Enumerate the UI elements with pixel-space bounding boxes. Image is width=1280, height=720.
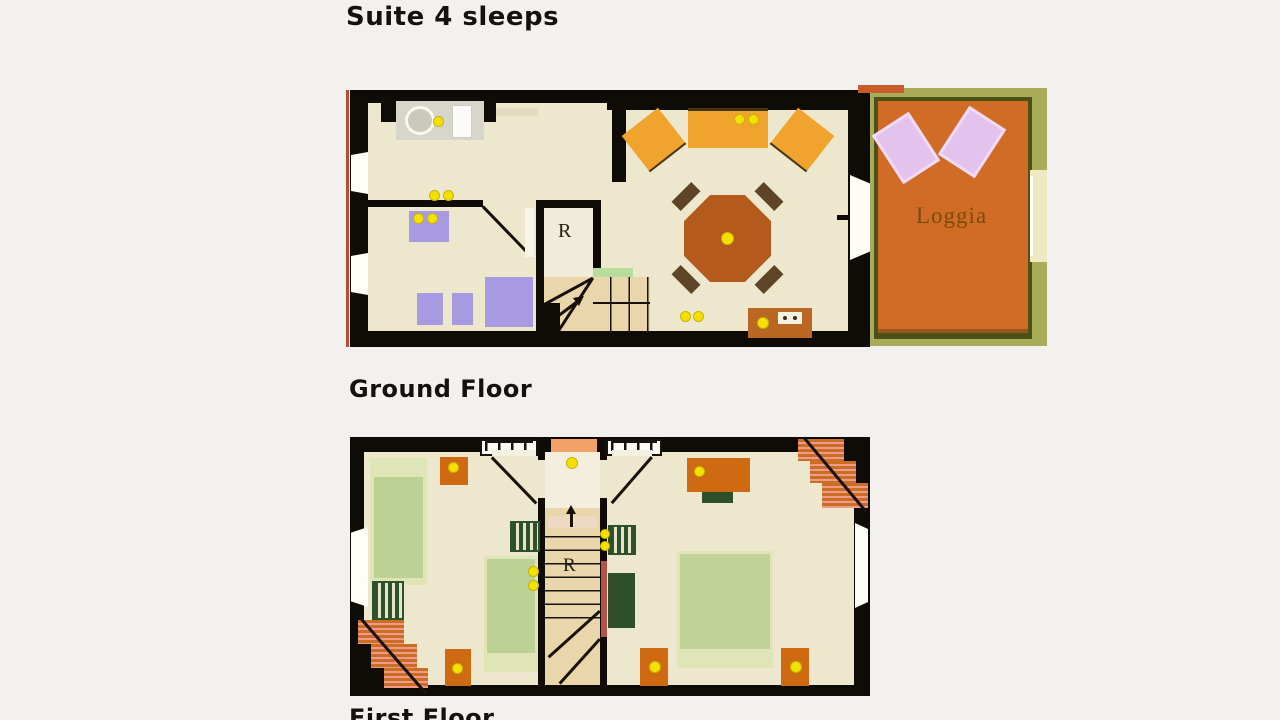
sideboard-knob bbox=[793, 316, 797, 320]
gf-living-divider-stub bbox=[612, 103, 626, 182]
sideboard-knob bbox=[783, 316, 787, 320]
lamp-dot bbox=[528, 566, 539, 577]
loggia-label: Loggia bbox=[916, 203, 987, 229]
bathroom-door-leaf bbox=[525, 208, 534, 257]
double-bed-mattress bbox=[680, 554, 770, 649]
kitchen-sink bbox=[405, 106, 435, 135]
lamp-dot bbox=[566, 457, 578, 469]
ff-stairwell-wall-stub-left bbox=[538, 452, 545, 460]
lamp-dot bbox=[413, 213, 424, 224]
lamp-dot bbox=[600, 529, 610, 539]
lamp-dot bbox=[680, 311, 691, 322]
gf-bathroom-wall bbox=[368, 200, 483, 207]
kitchen-appliance bbox=[452, 105, 472, 138]
gf-stairs-treads bbox=[593, 277, 650, 331]
bathroom-shower bbox=[485, 277, 533, 327]
lamp-dot bbox=[433, 116, 444, 127]
ff-window-right bbox=[855, 523, 868, 608]
page-title: Suite 4 sleeps bbox=[346, 2, 559, 32]
ground-floor-left-trim bbox=[346, 90, 349, 347]
radiator bbox=[608, 525, 636, 555]
lamp-dot bbox=[427, 213, 438, 224]
ff-storage-room-label: R bbox=[563, 555, 576, 577]
gf-storage-room-label: R bbox=[558, 220, 571, 243]
lamp-dot bbox=[600, 541, 610, 551]
gf-window-left-2 bbox=[351, 253, 368, 295]
french-window-gap-right bbox=[612, 450, 652, 456]
french-window-gap-left bbox=[492, 450, 536, 456]
bathroom-toilet bbox=[417, 293, 443, 325]
ff-stairwell-wall-stub-right bbox=[600, 452, 607, 460]
radiator bbox=[510, 521, 540, 552]
ground-floor-label: Ground Floor bbox=[349, 375, 532, 403]
lamp-dot bbox=[443, 190, 454, 201]
gf-storage-wall-right bbox=[593, 200, 601, 277]
loggia-opening-edge bbox=[1030, 176, 1033, 256]
lamp-dot bbox=[790, 661, 802, 673]
gf-storage-wall-top bbox=[536, 200, 601, 208]
gf-stairs-tread-line bbox=[593, 302, 650, 304]
lamp-dot bbox=[649, 661, 661, 673]
loggia-bottom-line bbox=[878, 329, 1028, 333]
lamp-dot bbox=[448, 462, 459, 473]
lamp-dot bbox=[694, 466, 705, 477]
lamp-dot bbox=[748, 114, 759, 125]
lamp-dot bbox=[429, 190, 440, 201]
loggia-top-trim bbox=[858, 85, 904, 93]
gf-pillar-right bbox=[483, 103, 496, 122]
wardrobe bbox=[608, 573, 635, 628]
lamp-dot bbox=[693, 311, 704, 322]
gf-wall-niche bbox=[496, 108, 538, 116]
first-floor-label: First Floor bbox=[349, 704, 495, 720]
ff-stairs-arrow-stem bbox=[570, 513, 573, 527]
loggia-door-leaf bbox=[850, 175, 870, 260]
gf-stair-wall-stub bbox=[536, 303, 560, 334]
lamp-dot bbox=[452, 663, 463, 674]
lamp-dot bbox=[734, 114, 745, 125]
sideboard-panel bbox=[778, 312, 802, 324]
floor-plan-page: Suite 4 sleeps R bbox=[0, 0, 1280, 720]
lamp-dot bbox=[757, 317, 769, 329]
desk-chair bbox=[702, 492, 733, 503]
gf-stairs-landing-strip bbox=[593, 268, 633, 277]
gf-window-left-1 bbox=[351, 152, 368, 194]
bathroom-bidet bbox=[452, 293, 473, 325]
ff-door-leaf-red bbox=[601, 561, 607, 637]
lamp-dot bbox=[721, 232, 734, 245]
single-bed-1-mattress bbox=[374, 477, 423, 578]
radiator bbox=[372, 581, 404, 620]
ff-window-left bbox=[351, 527, 368, 607]
lamp-dot bbox=[528, 580, 539, 591]
